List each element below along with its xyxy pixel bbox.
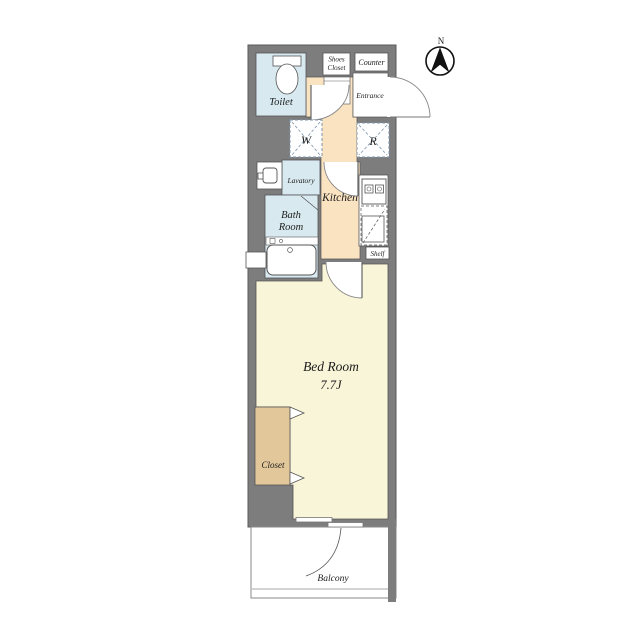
kitchen-counter — [359, 175, 388, 246]
floor-plan-page: Toilet Shoes Closet Counter Entrance W R… — [0, 0, 640, 640]
bedroom-size-label: 7.7J — [320, 378, 343, 392]
toilet-label: Toilet — [269, 97, 294, 108]
meter-box — [246, 252, 266, 268]
shoes-closet-label-line1: Shoes — [328, 56, 345, 64]
closet-label: Closet — [261, 460, 285, 470]
balcony-side-wall — [388, 519, 396, 602]
shelf-label: Shelf — [371, 250, 386, 258]
bathroom-label-line2: Room — [278, 222, 304, 233]
compass-north-label: N — [438, 36, 445, 46]
washer-space: W — [290, 120, 322, 157]
bedroom-label: Bed Room — [303, 359, 359, 374]
entrance-door-arc — [387, 77, 430, 117]
entrance-label: Entrance — [355, 91, 384, 100]
balcony-area — [251, 527, 396, 598]
shoes-closet-label-line2: Closet — [328, 64, 347, 72]
bathroom-label-line1: Bath — [281, 210, 301, 221]
balcony-label: Balcony — [317, 574, 349, 584]
counter-label: Counter — [358, 58, 385, 67]
lavatory-label: Lavatory — [286, 176, 315, 185]
refrigerator-space: R — [357, 123, 389, 157]
compass: N — [426, 36, 454, 75]
floor-plan-svg: Toilet Shoes Closet Counter Entrance W R… — [0, 0, 640, 640]
refrigerator-label: R — [368, 134, 377, 148]
closet — [255, 407, 290, 485]
stove-icon — [362, 179, 386, 204]
washer-label: W — [301, 133, 312, 147]
bathtub-icon — [266, 237, 318, 275]
washbasin-icon — [257, 162, 282, 189]
